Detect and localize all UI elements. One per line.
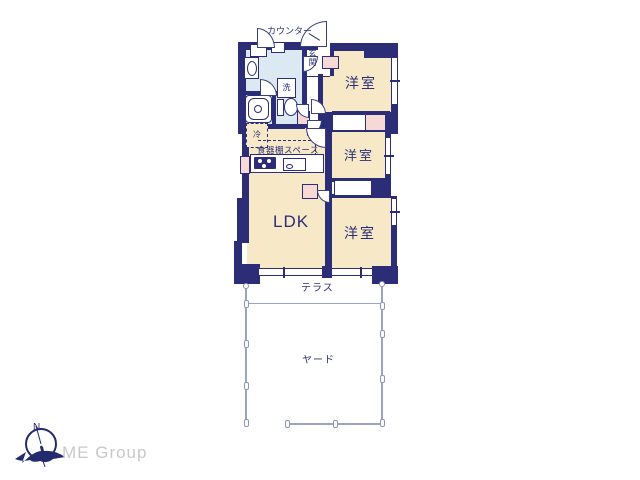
- kitchen-counter: [250, 154, 324, 173]
- company-name: ME Group: [62, 444, 147, 461]
- washer-space: 洗: [277, 78, 296, 98]
- room3-label: 洋室: [344, 226, 376, 240]
- fridge-label: 冷: [253, 130, 261, 139]
- closet-room1-white: [332, 114, 366, 131]
- fence-post: [244, 340, 249, 348]
- fence-post: [379, 281, 385, 287]
- toilet-tank-icon: [277, 99, 284, 116]
- fence-post: [380, 419, 385, 427]
- closet-room3-white: [334, 180, 372, 196]
- stove-icon: [254, 157, 276, 169]
- yard-label: ヤード: [302, 356, 335, 366]
- washer-label: 洗: [283, 84, 291, 92]
- storage-kitchen-pink: [240, 156, 250, 174]
- cupboard-dash-line-h: [258, 140, 316, 141]
- fence-post: [244, 382, 249, 390]
- terrace-bottom-line: [246, 303, 382, 304]
- cupboard-label: 食器棚スペース: [257, 146, 319, 155]
- window-room1-right: [391, 58, 398, 104]
- window-room3-terrace: [332, 268, 372, 276]
- washbasin: [244, 57, 259, 79]
- fence-post: [244, 419, 249, 427]
- closet-room1-pink: [365, 114, 386, 131]
- fence-post: [380, 330, 385, 338]
- closet-ldk-pink: [302, 184, 318, 199]
- terrace-label: テラス: [301, 284, 334, 294]
- window-room2-right: [385, 138, 391, 174]
- fence-post: [244, 300, 249, 308]
- fence-post: [380, 302, 385, 310]
- genkan-label: 玄関: [308, 49, 316, 67]
- fence-post: [285, 420, 290, 428]
- counter-label: カウンター: [267, 27, 312, 36]
- shoebox-genkan-pink: [322, 56, 339, 69]
- room2-label: 洋室: [344, 149, 374, 162]
- window-ldk-terrace: [259, 268, 322, 276]
- wall-bath-vertical: [272, 93, 276, 124]
- window-room3-right: [391, 199, 397, 225]
- wall-closet2-right-block: [372, 180, 390, 194]
- fence-post: [333, 420, 338, 428]
- fence-post: [243, 283, 249, 289]
- floorplan-canvas: 洗 冷: [0, 0, 640, 480]
- ldk-label: LDK: [273, 213, 309, 230]
- wall-left-ldk-upper: [237, 198, 249, 243]
- fence-post: [380, 375, 385, 383]
- compass-bird-logo-icon: N: [13, 418, 67, 472]
- compass-north-letter: N: [33, 422, 40, 433]
- wall-bottomleft-block: [234, 264, 260, 284]
- bathtub-handle-icon: [254, 105, 262, 113]
- bathtub: [245, 95, 272, 123]
- sink-icon: [283, 158, 306, 171]
- washbasin-bowl-icon: [247, 61, 257, 76]
- room1-label: 洋室: [345, 76, 377, 90]
